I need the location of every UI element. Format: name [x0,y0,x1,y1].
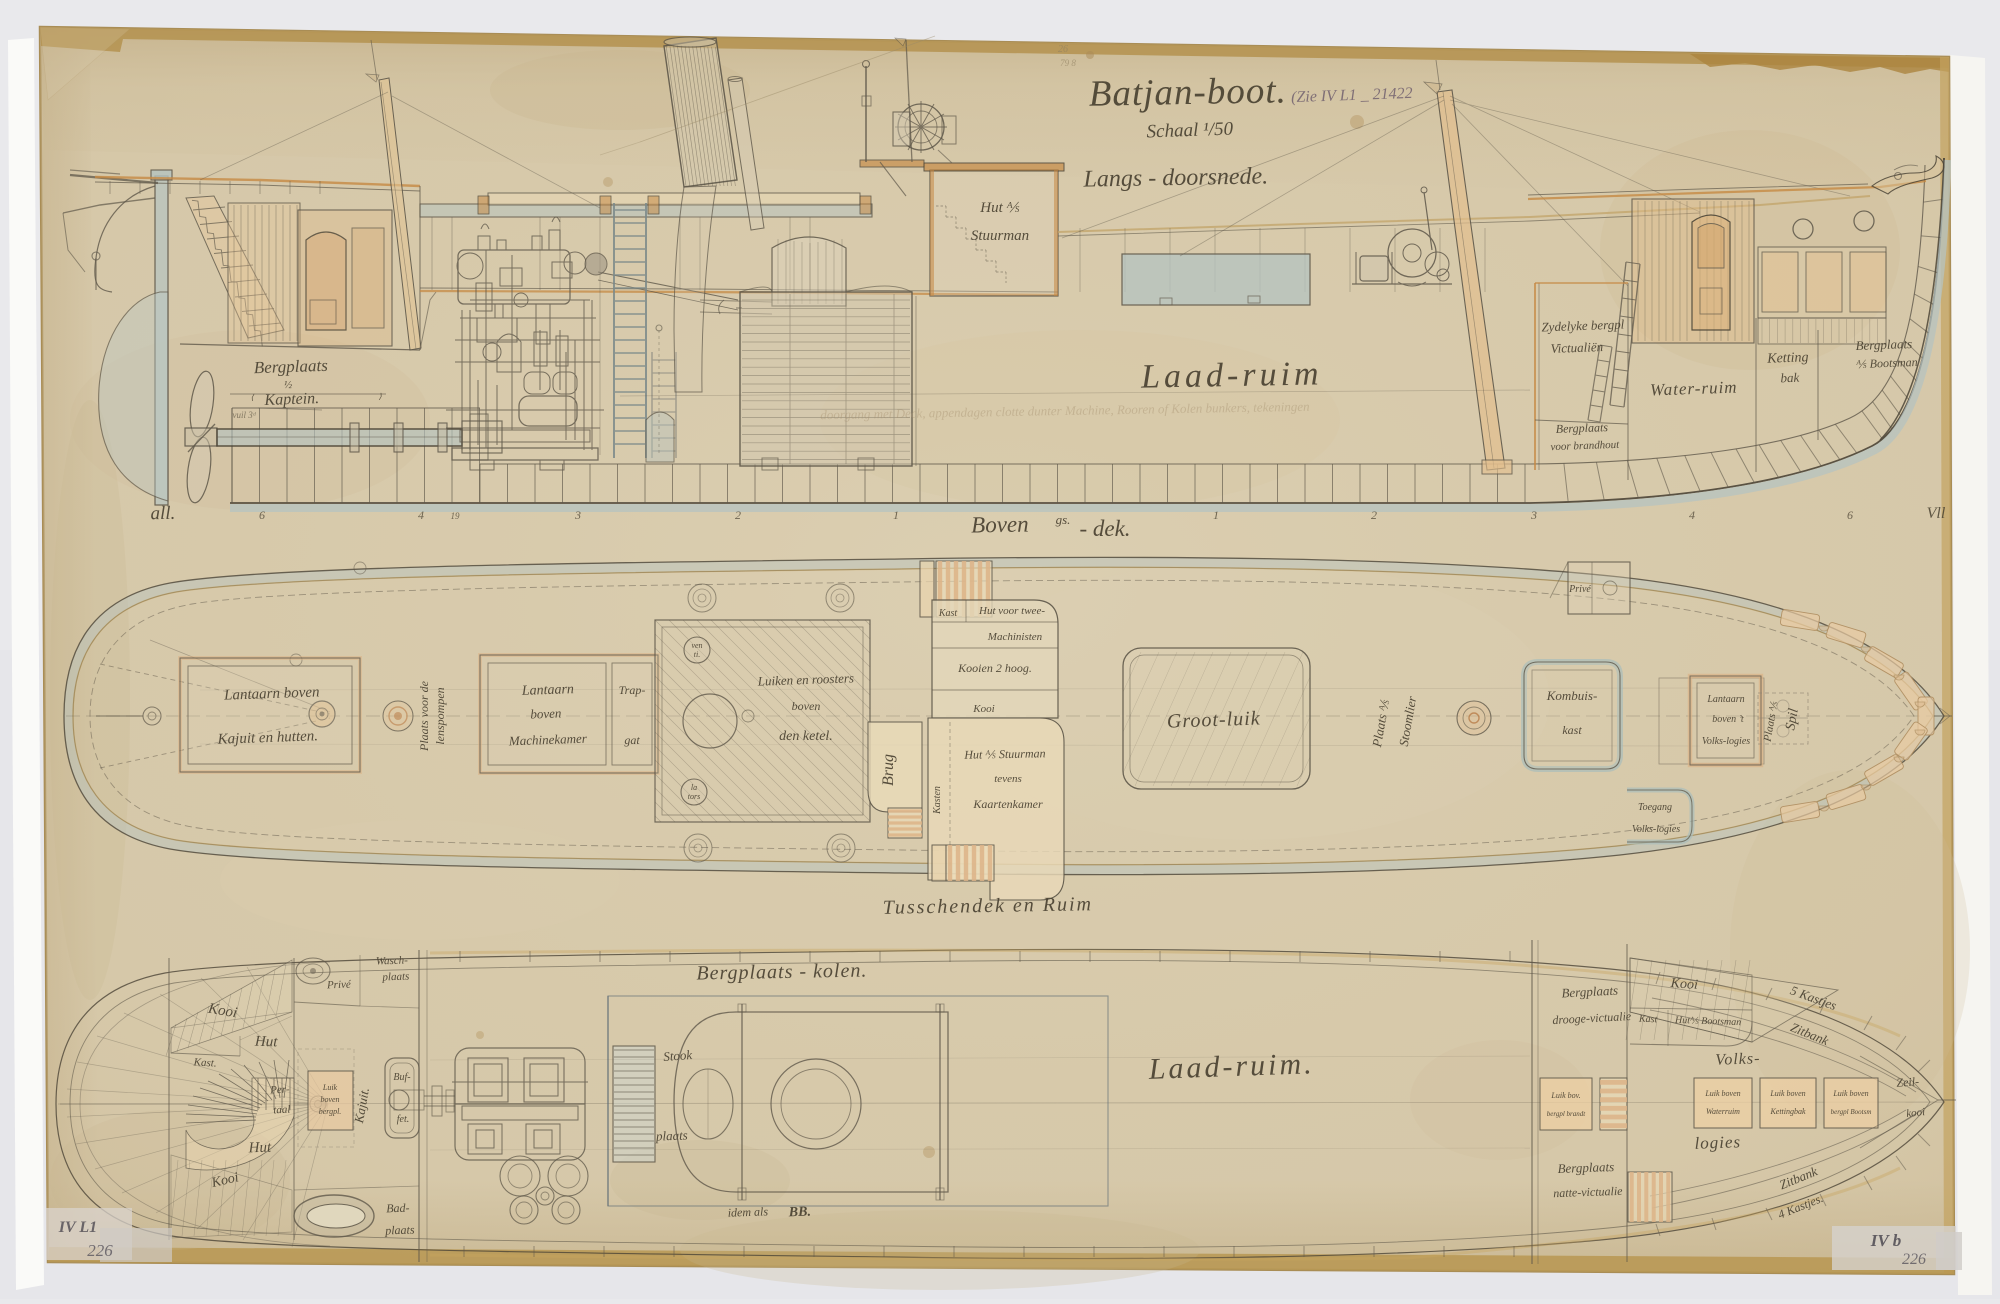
svg-text:3: 3 [574,508,581,522]
svg-text:Water-ruim: Water-ruim [1650,377,1738,399]
svg-text:Batjan-boot.: Batjan-boot. [1088,70,1287,114]
svg-text:Luik: Luik [322,1083,338,1092]
svg-text:3: 3 [1530,508,1537,522]
svg-text:Per-: Per- [269,1083,290,1096]
svg-text:Kaptein.: Kaptein. [263,390,319,409]
svg-text:Volks-logies: Volks-logies [1632,824,1680,835]
svg-text:fet.: fet. [397,1114,410,1125]
svg-text:Luik bov.: Luik bov. [1550,1091,1580,1100]
svg-text:IV b: IV b [1870,1231,1901,1250]
svg-text:Kast: Kast [938,608,958,619]
svg-text:Luik boven: Luik boven [1704,1089,1740,1098]
svg-text:Luik boven: Luik boven [1832,1089,1868,1098]
svg-text:Machinisten: Machinisten [987,631,1043,643]
svg-text:Kooi: Kooi [972,703,994,715]
svg-text:Kast: Kast [1638,1014,1658,1026]
svg-text:Kasten: Kasten [932,786,943,815]
svg-text:Bergplaats - kolen.: Bergplaats - kolen. [696,960,867,985]
svg-text:logies: logies [1694,1132,1741,1153]
svg-text:226: 226 [87,1241,113,1260]
svg-text:Bergplaats: Bergplaats [1557,1159,1614,1176]
svg-text:- dek.: - dek. [1079,516,1130,541]
svg-text:la: la [691,783,697,792]
svg-text:boven: boven [792,699,821,713]
svg-text:Laad-ruim: Laad-ruim [1140,355,1323,395]
svg-text:boven: boven [320,1095,339,1104]
svg-text:Privé: Privé [1568,584,1591,595]
svg-text:Laad-ruim.: Laad-ruim. [1147,1047,1315,1086]
svg-text:Toegang: Toegang [1638,802,1672,813]
svg-text:Bergplaats: Bergplaats [1561,983,1618,1001]
svg-text:all.: all. [150,503,175,524]
svg-text:Kooi: Kooi [1669,976,1698,993]
svg-text:226: 226 [1902,1251,1926,1268]
svg-text:4: 4 [1689,508,1695,522]
svg-text:bergpl.: bergpl. [319,1107,342,1116]
svg-text:Trap-: Trap- [619,683,646,697]
svg-text:bergpl Bootsm: bergpl Bootsm [1831,1108,1872,1116]
svg-text:kast: kast [1562,723,1582,737]
svg-text:1: 1 [893,508,899,522]
svg-text:79 8: 79 8 [1060,58,1076,68]
svg-text:Kast.: Kast. [192,1056,217,1069]
svg-text:vuil 3ᵈ: vuil 3ᵈ [232,410,256,420]
svg-text:Brug: Brug [880,754,897,786]
svg-text:Buf-: Buf- [393,1072,410,1083]
svg-text:bak: bak [1780,370,1800,386]
svg-text:Luik boven: Luik boven [1769,1089,1805,1098]
svg-text:Kettingbak: Kettingbak [1769,1107,1806,1116]
svg-text:boven ’t: boven ’t [1712,714,1744,725]
svg-text:plaats: plaats [655,1127,688,1143]
svg-text:Kombuis-: Kombuis- [1546,688,1598,703]
svg-text:Bergplaats: Bergplaats [1556,420,1609,436]
svg-text:Hut voor twee-: Hut voor twee- [978,605,1045,617]
svg-text:6: 6 [259,508,265,522]
svg-text:Victualiën: Victualiën [1550,339,1603,356]
svg-text:2: 2 [1371,508,1377,522]
svg-text:4: 4 [418,508,424,522]
svg-text:⅍ Bootsman: ⅍ Bootsman [1856,355,1918,371]
svg-text:voor brandhout: voor brandhout [1550,439,1620,453]
svg-text:taal: taal [273,1104,291,1117]
svg-text:Kooien 2 hoog.: Kooien 2 hoog. [957,661,1032,675]
svg-text:Langs - doorsnede.: Langs - doorsnede. [1082,163,1268,192]
svg-text:Hut: Hut [254,1034,279,1051]
svg-text:Volks-logies: Volks-logies [1702,736,1750,747]
svg-text:Groot-luik: Groot-luik [1167,707,1262,732]
svg-text:BB.: BB. [788,1205,812,1221]
svg-text:Bergplaats: Bergplaats [254,356,329,378]
svg-text:lenspompen: lenspompen [433,687,447,744]
svg-text:Schaal ¹/50: Schaal ¹/50 [1146,118,1234,142]
svg-text:plaats: plaats [384,1222,415,1237]
svg-text:Bad-: Bad- [386,1201,410,1216]
svg-text:Boven: Boven [971,512,1029,538]
svg-text:plaats: plaats [381,971,409,984]
svg-text:Vll: Vll [1927,505,1946,522]
svg-text:1: 1 [1213,508,1219,522]
svg-text:gat: gat [624,733,640,747]
svg-text:Privé: Privé [326,979,352,992]
svg-text:Kaartenkamer: Kaartenkamer [972,797,1043,811]
svg-text:idem als: idem als [727,1204,768,1219]
svg-text:bergpl brandt: bergpl brandt [1547,1110,1586,1118]
svg-text:den ketel.: den ketel. [779,729,833,744]
svg-text:tors: tors [688,792,700,801]
svg-text:Machinekamer: Machinekamer [508,731,588,749]
svg-text:26: 26 [1058,44,1068,55]
svg-text:Wasch-: Wasch- [376,954,409,967]
svg-text:Ketting: Ketting [1766,350,1809,366]
svg-text:Hut ⅍ Stuurman: Hut ⅍ Stuurman [963,746,1045,761]
svg-text:Hut ⅍: Hut ⅍ [979,200,1019,216]
svg-text:2: 2 [735,508,741,522]
svg-text:natte-victualie: natte-victualie [1553,1184,1623,1200]
svg-text:Stuurman: Stuurman [971,228,1029,244]
svg-text:½: ½ [284,379,292,391]
svg-text:Lantaarn: Lantaarn [521,682,575,699]
svg-text:IV L1: IV L1 [58,1219,97,1236]
svg-text:Lantaarn: Lantaarn [1706,694,1744,705]
svg-text:19: 19 [451,511,461,521]
svg-text:Waterruim: Waterruim [1706,1107,1740,1116]
svg-text:Tusschendek en Ruim: Tusschendek en Ruim [883,893,1094,919]
svg-text:Zydelyke bergpl: Zydelyke bergpl [1541,317,1625,335]
svg-text:Bergplaats: Bergplaats [1855,336,1912,353]
svg-text:ti.: ti. [694,650,700,659]
svg-text:boven: boven [530,705,562,721]
svg-text:6: 6 [1847,508,1853,522]
svg-text:Volks-: Volks- [1715,1050,1761,1069]
svg-text:gs.: gs. [1056,512,1071,527]
svg-text:ven: ven [691,641,702,650]
svg-text:tevens: tevens [994,773,1021,785]
svg-text:Hut: Hut [247,1140,272,1157]
svg-text:Lantaarn boven: Lantaarn boven [223,684,320,703]
svg-text:Plaats voor de: Plaats voor de [417,680,431,752]
